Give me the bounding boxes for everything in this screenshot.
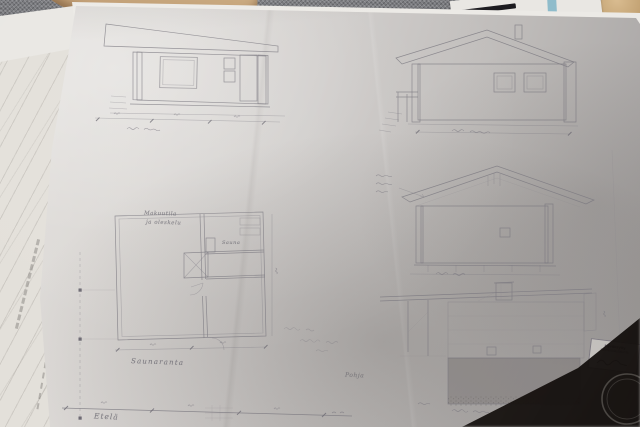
drawing-sheet: Makuutila ja oleskelu Sauna Saunaranta P… — [0, 0, 640, 427]
dashed-pencil-line — [15, 239, 40, 329]
pencil-drawing — [0, 0, 640, 427]
elevation-rear — [380, 150, 620, 413]
elevation-long-side — [95, 24, 285, 131]
photo-scene: Makuutila ja oleskelu Sauna Saunaranta P… — [0, 0, 640, 427]
approval-stamp: Hyväksytty rakennuslautakunta — [587, 338, 640, 374]
elevation-gable-end — [376, 166, 594, 276]
bottom-left-caption: Etelä — [94, 411, 119, 421]
plan-sauna-label: Sauna — [222, 240, 240, 246]
elevation-south-gable — [379, 25, 578, 136]
floor-plan — [79, 212, 278, 420]
lower-caption: Pohja — [345, 372, 364, 380]
plan-room-label-2: ja oleskelu — [146, 220, 181, 227]
faint-notes — [284, 328, 338, 352]
plan-room-label: Makuutila — [144, 211, 177, 218]
